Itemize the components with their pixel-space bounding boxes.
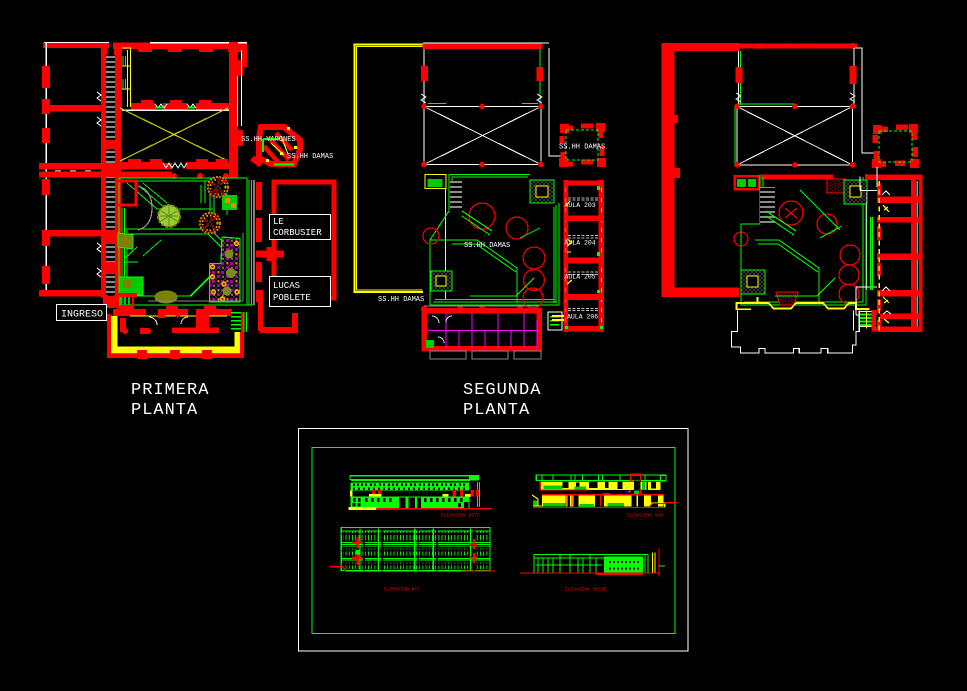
svg-text:ELEVACION OESTE: ELEVACION OESTE (565, 587, 607, 593)
svg-text:SS.HH DAMAS: SS.HH DAMAS (287, 153, 333, 161)
svg-text:INGRESO: INGRESO (61, 310, 103, 321)
svg-text:PLANTA: PLANTA (131, 401, 198, 420)
svg-text:ELEVACION NTE: ELEVACION NTE (384, 587, 420, 593)
svg-text:CORBUSIER: CORBUSIER (273, 228, 322, 238)
svg-text:SS.HH DAMAS: SS.HH DAMAS (378, 296, 424, 304)
svg-text:AULA 206: AULA 206 (567, 314, 598, 321)
svg-text:SS.HH DAMAS: SS.HH DAMAS (464, 242, 510, 250)
svg-text:PRIMERA: PRIMERA (131, 381, 209, 400)
svg-text:SEGUNDA: SEGUNDA (463, 381, 541, 400)
svg-text:SS.HH DAMAS: SS.HH DAMAS (559, 144, 605, 152)
svg-text:LUCAS: LUCAS (273, 281, 300, 291)
svg-text:ELEVACION ESTE: ELEVACION ESTE (441, 513, 480, 519)
svg-text:PLANTA: PLANTA (463, 401, 530, 420)
svg-text:ELEVACION SUR: ELEVACION SUR (627, 513, 663, 519)
svg-text:SS.HH VARONES: SS.HH VARONES (241, 136, 296, 144)
svg-text:AULA 203: AULA 203 (565, 202, 596, 209)
svg-text:POBLETE: POBLETE (273, 293, 311, 303)
svg-text:AULA 205: AULA 205 (565, 274, 596, 281)
svg-text:LE: LE (273, 217, 284, 227)
